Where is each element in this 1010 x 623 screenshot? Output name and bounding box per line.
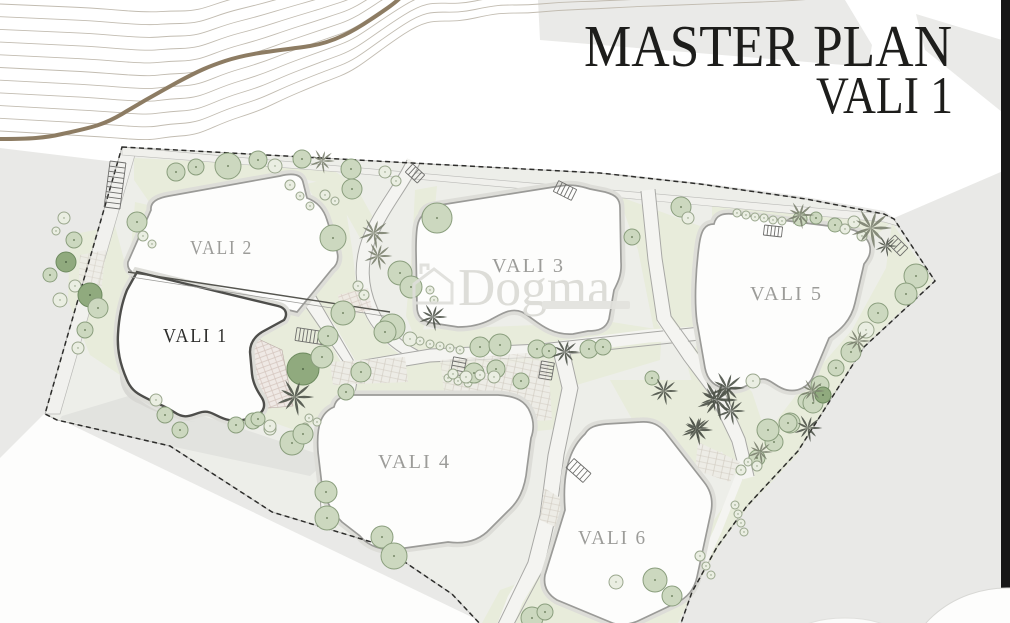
svg-text:VALI 6: VALI 6 xyxy=(578,527,647,549)
svg-text:VALI 4: VALI 4 xyxy=(378,451,451,473)
svg-text:VALI 2: VALI 2 xyxy=(190,237,253,259)
svg-text:VALI 1: VALI 1 xyxy=(816,67,953,125)
svg-text:VALI 1: VALI 1 xyxy=(163,325,228,347)
svg-text:VALI 5: VALI 5 xyxy=(750,283,823,305)
